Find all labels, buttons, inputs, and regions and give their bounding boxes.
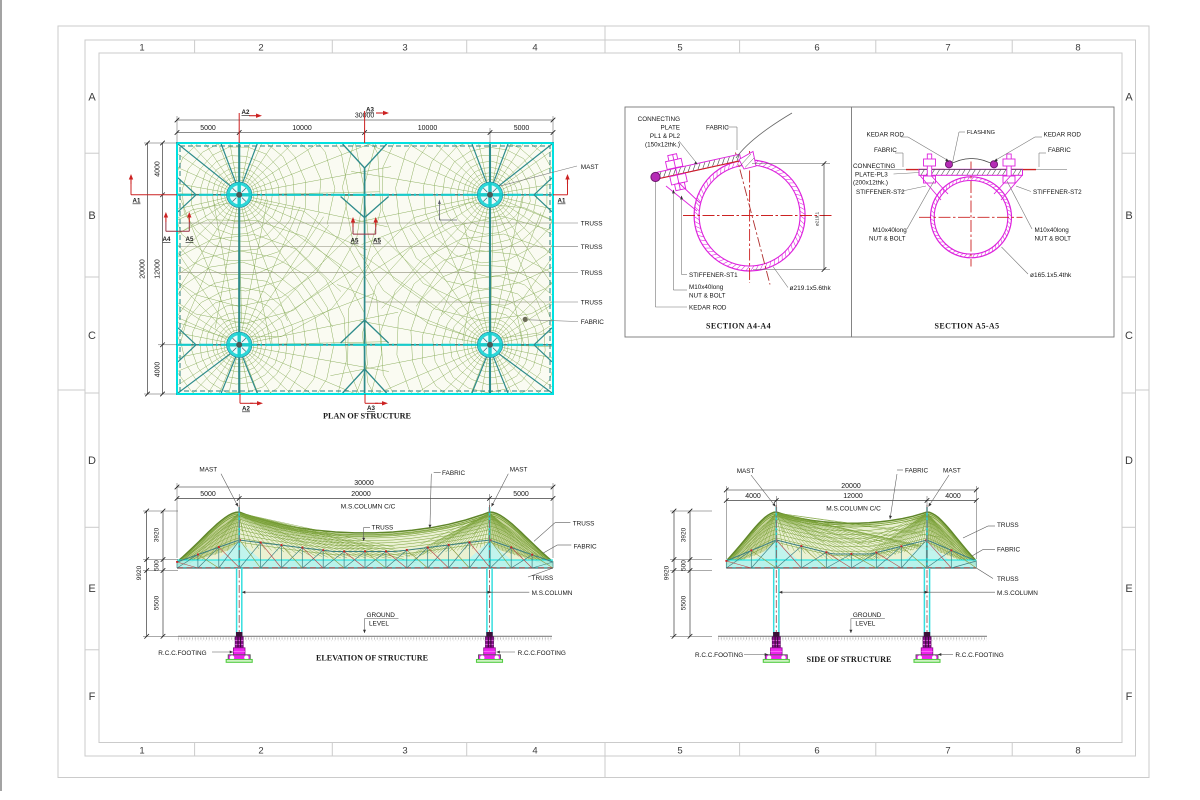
svg-text:A: A <box>1125 92 1133 104</box>
svg-text:FABRIC: FABRIC <box>997 546 1020 553</box>
svg-text:FABRIC: FABRIC <box>442 470 465 477</box>
svg-text:4: 4 <box>532 43 537 54</box>
svg-text:R.C.C.FOOTING: R.C.C.FOOTING <box>955 652 1003 659</box>
svg-text:5000: 5000 <box>200 491 216 498</box>
svg-text:TRUSS: TRUSS <box>997 522 1019 529</box>
svg-text:MAST: MAST <box>510 466 528 473</box>
svg-text:A3: A3 <box>366 107 374 114</box>
svg-text:NUT & BOLT: NUT & BOLT <box>869 236 906 243</box>
svg-text:2: 2 <box>258 746 263 757</box>
svg-text:ø219.1: ø219.1 <box>815 211 820 226</box>
svg-text:FABRIC: FABRIC <box>574 543 597 550</box>
svg-text:R.C.C.FOOTING: R.C.C.FOOTING <box>695 652 743 659</box>
svg-text:9920: 9920 <box>664 565 671 580</box>
svg-text:SECTION A4-A4: SECTION A4-A4 <box>706 322 771 331</box>
svg-text:TRUSS: TRUSS <box>573 520 595 527</box>
svg-text:9920: 9920 <box>136 565 143 580</box>
svg-text:5: 5 <box>677 43 682 54</box>
svg-text:500: 500 <box>154 560 161 571</box>
svg-text:10000: 10000 <box>418 125 438 132</box>
svg-text:D: D <box>88 455 96 467</box>
svg-text:20000: 20000 <box>841 483 861 490</box>
svg-text:M10x40long: M10x40long <box>873 227 908 234</box>
svg-text:KEDAR ROD: KEDAR ROD <box>689 305 727 312</box>
svg-text:4000: 4000 <box>745 493 761 500</box>
svg-text:FABRIC: FABRIC <box>874 147 897 154</box>
svg-text:FABRIC: FABRIC <box>905 468 928 475</box>
svg-text:TRUSS: TRUSS <box>581 244 603 251</box>
svg-text:TRUSS: TRUSS <box>372 525 394 532</box>
svg-text:A4: A4 <box>163 236 171 243</box>
svg-text:5500: 5500 <box>681 595 688 610</box>
svg-text:R.C.C.FOOTING: R.C.C.FOOTING <box>158 650 206 657</box>
svg-text:8: 8 <box>1075 746 1080 757</box>
svg-text:4000: 4000 <box>945 493 961 500</box>
svg-text:E: E <box>1125 583 1132 595</box>
svg-text:LEVEL: LEVEL <box>855 621 875 628</box>
svg-text:GROUND: GROUND <box>367 612 396 619</box>
svg-text:8: 8 <box>1075 43 1080 54</box>
svg-text:MAST: MAST <box>199 467 217 474</box>
svg-text:1: 1 <box>139 43 144 54</box>
svg-text:A5: A5 <box>351 238 359 245</box>
svg-text:FABRIC: FABRIC <box>581 319 604 326</box>
svg-text:NUT & BOLT: NUT & BOLT <box>689 293 726 300</box>
svg-text:LEVEL: LEVEL <box>369 621 389 628</box>
svg-text:FLASHING: FLASHING <box>967 130 995 136</box>
svg-text:KEDAR ROD: KEDAR ROD <box>1044 132 1082 139</box>
svg-text:MAST: MAST <box>943 468 961 475</box>
svg-text:10000: 10000 <box>292 125 312 132</box>
svg-text:NUT & BOLT: NUT & BOLT <box>1035 236 1072 243</box>
svg-text:3920: 3920 <box>154 527 161 542</box>
svg-text:E: E <box>88 583 95 595</box>
svg-text:FABRIC: FABRIC <box>1048 147 1071 154</box>
svg-text:12000: 12000 <box>155 259 162 279</box>
svg-text:7: 7 <box>945 746 950 757</box>
svg-text:STIFFENER-ST2: STIFFENER-ST2 <box>1033 189 1082 196</box>
svg-text:PLATE: PLATE <box>661 125 680 132</box>
svg-text:4000: 4000 <box>155 362 162 378</box>
svg-text:A1: A1 <box>558 198 566 205</box>
svg-text:SIDE OF STRUCTURE: SIDE OF STRUCTURE <box>807 655 892 664</box>
svg-text:STIFFENER-ST2: STIFFENER-ST2 <box>856 189 905 196</box>
svg-text:B: B <box>1125 210 1132 222</box>
svg-text:ø165.1x5.4thk: ø165.1x5.4thk <box>1030 272 1072 279</box>
svg-text:6: 6 <box>814 746 819 757</box>
svg-text:(200x12thk.): (200x12thk.) <box>853 180 888 187</box>
svg-text:1: 1 <box>139 746 144 757</box>
svg-text:D: D <box>1125 455 1133 467</box>
svg-text:M.S.COLUMN: M.S.COLUMN <box>997 590 1038 597</box>
svg-text:B: B <box>88 210 95 222</box>
svg-text:CONNECTING: CONNECTING <box>638 116 680 123</box>
svg-text:A5: A5 <box>186 236 194 243</box>
svg-text:4000: 4000 <box>155 161 162 177</box>
svg-text:M10x40long: M10x40long <box>689 284 724 291</box>
svg-text:TRUSS: TRUSS <box>581 220 603 227</box>
svg-text:3: 3 <box>402 746 407 757</box>
svg-text:KEDAR ROD: KEDAR ROD <box>867 132 905 139</box>
svg-text:4: 4 <box>532 746 537 757</box>
svg-text:CONNECTING: CONNECTING <box>853 163 895 170</box>
svg-text:6: 6 <box>814 43 819 54</box>
svg-text:M.S.COLUMN: M.S.COLUMN <box>532 590 573 597</box>
svg-text:C: C <box>88 330 96 342</box>
svg-text:SECTION A5-A5: SECTION A5-A5 <box>935 322 1000 331</box>
svg-text:F: F <box>1126 691 1133 703</box>
svg-text:PLATE-PL3: PLATE-PL3 <box>855 171 888 178</box>
svg-text:F: F <box>89 691 96 703</box>
svg-text:A: A <box>88 92 96 104</box>
svg-text:M.S.COLUMN C/C: M.S.COLUMN C/C <box>826 506 881 513</box>
svg-text:A1: A1 <box>133 198 141 205</box>
svg-text:20000: 20000 <box>351 491 371 498</box>
svg-text:(150x12thk.): (150x12thk.) <box>645 142 680 149</box>
svg-text:C: C <box>1125 330 1133 342</box>
svg-text:MAST: MAST <box>581 164 599 171</box>
svg-text:A2: A2 <box>242 109 250 116</box>
svg-text:TRUSS: TRUSS <box>581 299 603 306</box>
svg-text:PL1 & PL2: PL1 & PL2 <box>650 133 681 140</box>
svg-text:M.S.COLUMN C/C: M.S.COLUMN C/C <box>341 504 396 511</box>
svg-text:R.C.C.FOOTING: R.C.C.FOOTING <box>518 650 566 657</box>
svg-text:3920: 3920 <box>681 527 688 542</box>
svg-text:5000: 5000 <box>514 125 530 132</box>
svg-text:500: 500 <box>681 560 688 571</box>
svg-text:FABRIC: FABRIC <box>706 125 729 132</box>
svg-text:5500: 5500 <box>154 595 161 610</box>
svg-text:ELEVATION OF STRUCTURE: ELEVATION OF STRUCTURE <box>316 654 428 663</box>
svg-text:M10x40long: M10x40long <box>1035 227 1070 234</box>
svg-text:3: 3 <box>402 43 407 54</box>
svg-text:STIFFENER-ST1: STIFFENER-ST1 <box>689 272 738 279</box>
svg-text:PLAN OF STRUCTURE: PLAN OF STRUCTURE <box>323 412 411 421</box>
svg-text:5000: 5000 <box>513 491 529 498</box>
svg-text:5: 5 <box>677 746 682 757</box>
svg-text:A2: A2 <box>242 406 250 413</box>
svg-text:A5: A5 <box>373 238 381 245</box>
svg-text:MAST: MAST <box>737 468 755 475</box>
svg-text:TRUSS: TRUSS <box>532 575 554 582</box>
svg-text:7: 7 <box>945 43 950 54</box>
svg-text:TRUSS: TRUSS <box>581 270 603 277</box>
svg-text:30000: 30000 <box>354 480 374 487</box>
svg-text:ø219.1x5.6thk: ø219.1x5.6thk <box>790 285 832 292</box>
svg-text:20000: 20000 <box>140 259 147 279</box>
svg-text:5000: 5000 <box>200 125 216 132</box>
svg-text:GROUND: GROUND <box>853 612 882 619</box>
svg-text:12000: 12000 <box>843 493 863 500</box>
svg-text:TRUSS: TRUSS <box>997 576 1019 583</box>
svg-text:2: 2 <box>258 43 263 54</box>
